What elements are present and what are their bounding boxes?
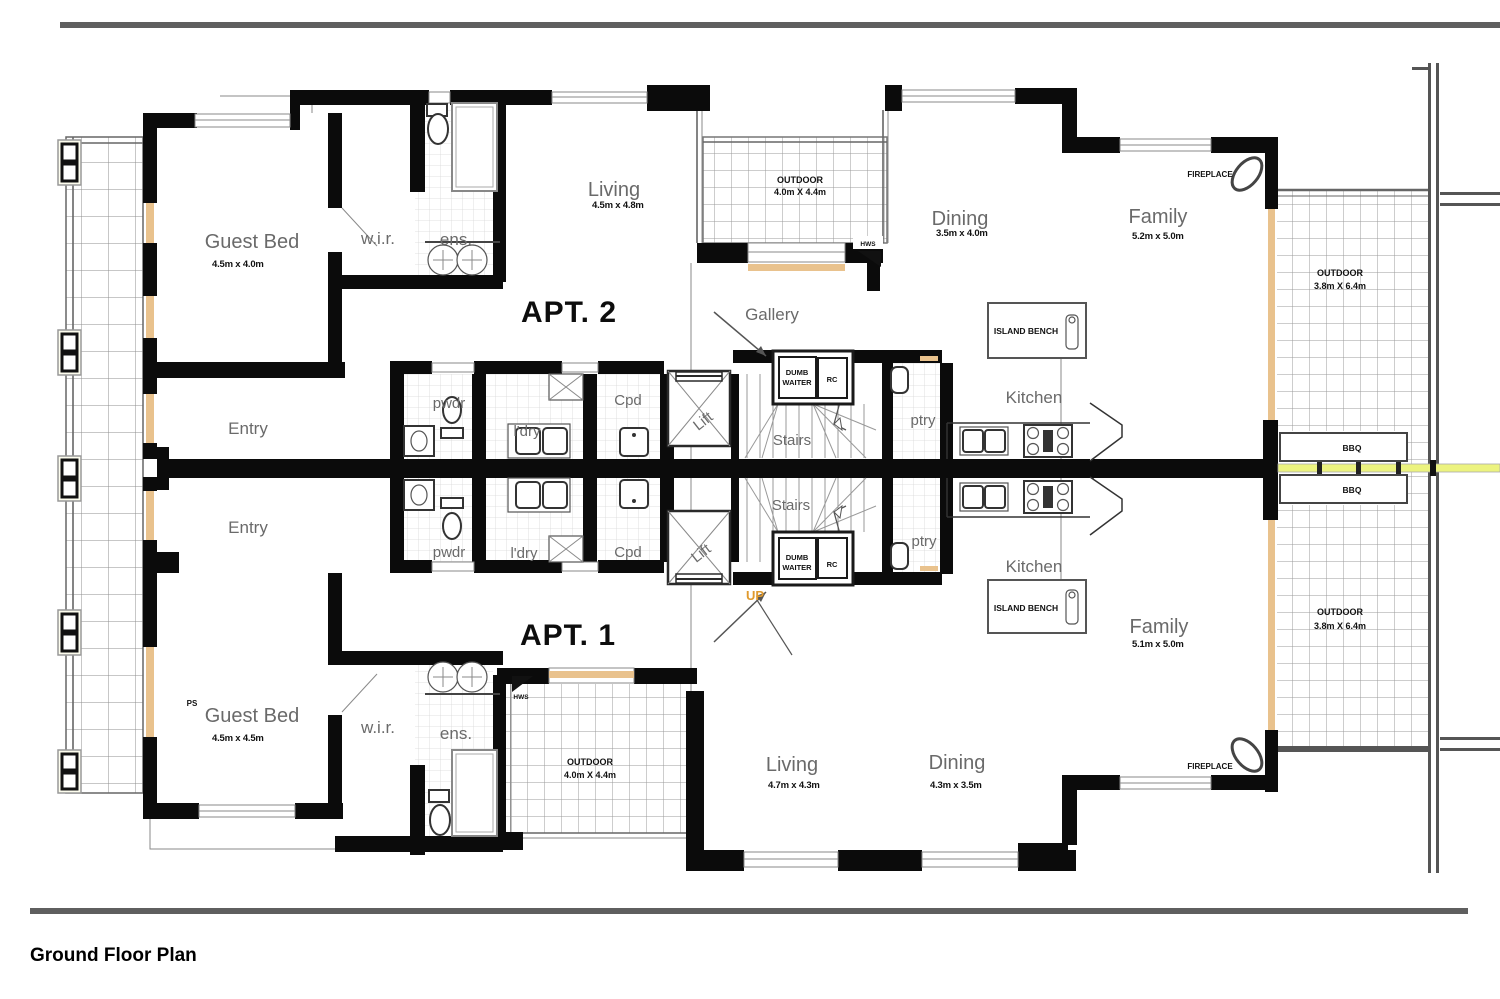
bbq-area (1278, 433, 1500, 503)
apt1-island-bench-label: ISLAND BENCH (994, 603, 1058, 613)
window (922, 852, 1018, 867)
toilet-icon (429, 790, 450, 835)
apt2-kitchen-label: Kitchen (1006, 388, 1063, 407)
shower-icon (452, 750, 497, 836)
floor-plan-canvas: Guest Bed 4.5m x 4.0m w.i.r. ens. Living… (0, 0, 1500, 999)
toilet-icon (427, 104, 448, 144)
apt1-dumb-waiter-l2: WAITER (782, 563, 812, 572)
apt2-wir-label: w.i.r. (360, 229, 395, 248)
window (429, 92, 450, 103)
sliding-door-top-outdoor (748, 243, 845, 271)
apt1-guest-bed-label: Guest Bed (205, 705, 300, 727)
apt2-family-dims: 5.2m x 5.0m (1132, 231, 1184, 242)
apt2-fireplace-label: FIREPLACE (1187, 170, 1233, 179)
apt2-living-dims: 4.5m x 4.8m (592, 200, 644, 211)
window (744, 852, 838, 867)
apt1-ldry-label: l'dry (510, 545, 538, 562)
apt2-entry-label: Entry (228, 419, 268, 438)
apt2-ldry-label: l'dry (513, 423, 541, 440)
window (195, 114, 290, 127)
window (562, 363, 598, 372)
window (562, 562, 598, 571)
kitchen-sink-icon (960, 427, 1008, 455)
outdoor-grid-top-right (1277, 190, 1428, 431)
shower-icon (452, 103, 497, 191)
window (902, 90, 1015, 102)
apt1-ps-label: PS (187, 699, 198, 708)
apt2-hws-label: HWS (860, 241, 876, 248)
bbq-label-top: BBQ (1343, 443, 1362, 453)
apt2-stairs-label: Stairs (773, 432, 811, 449)
floor-plan-drawing: Guest Bed 4.5m x 4.0m w.i.r. ens. Living… (0, 0, 1500, 999)
rangehood-icon (1090, 403, 1122, 461)
apt2-outdoor-side-label: OUTDOOR (1317, 268, 1363, 278)
apt2-dining-label: Dining (932, 208, 989, 230)
apt1-living-dims: 4.7m x 4.3m (768, 780, 820, 791)
apt1-dumb-waiter-l1: DUMB (786, 553, 809, 562)
apt1-guest-bed-dims: 4.5m x 4.5m (212, 733, 264, 744)
lift-top (668, 371, 730, 446)
tap-icon (1066, 315, 1078, 349)
window (432, 562, 474, 571)
apt2-cpd-label: Cpd (614, 392, 642, 409)
vanity-icon (404, 480, 434, 510)
apt2-ptry-label: ptry (910, 412, 936, 429)
apt1-pwdr-label: pwdr (433, 544, 466, 561)
apt1-hws-label: HWS (513, 694, 529, 701)
window (1120, 777, 1211, 789)
apt2-living-label: Living (588, 179, 640, 201)
apt1-stairs-label: Stairs (772, 497, 810, 514)
apt2-dining-dims: 3.5m x 4.0m (936, 228, 988, 239)
plan-title: Ground Floor Plan (30, 945, 197, 967)
rangehood-icon (1090, 477, 1122, 535)
deck-post (58, 750, 81, 793)
window (432, 363, 474, 372)
apt2-outdoor-side-dims: 3.8m X 6.4m (1314, 281, 1366, 291)
deck-post (58, 456, 81, 501)
sliding-door-bottom-outdoor (549, 668, 634, 683)
apt1-ptry-label: ptry (911, 533, 937, 550)
apt2-ens-label: ens. (440, 230, 472, 249)
apt2-island-bench-label: ISLAND BENCH (994, 326, 1058, 336)
apt1-entry-label: Entry (228, 518, 268, 537)
apt1-cpd-label: Cpd (614, 544, 642, 561)
kitchen-top (947, 403, 1122, 461)
window (1120, 139, 1211, 151)
linen-cupboard-icon (549, 374, 583, 400)
apt2-guest-bed-dims: 4.5m x 4.0m (212, 259, 264, 270)
apt1-outdoor-label: OUTDOOR (567, 757, 613, 767)
vanity-icon (404, 426, 434, 456)
apt2-name: APT. 2 (521, 296, 617, 329)
kitchen-sink-icon (960, 483, 1008, 511)
apt1-outdoor-dims: 4.0m X 4.4m (564, 770, 616, 780)
apt1-ens-label: ens. (440, 724, 472, 743)
apt2-family-label: Family (1129, 206, 1188, 228)
apt2-guest-bed-label: Guest Bed (205, 231, 300, 253)
tap-icon (1066, 590, 1078, 624)
window (552, 92, 647, 103)
deck-post (58, 140, 81, 185)
apt2-pwdr-label: pwdr (433, 395, 466, 412)
deck-post (58, 610, 81, 655)
apt1-living-label: Living (766, 754, 818, 776)
kitchen-bottom (947, 477, 1122, 535)
window (199, 805, 295, 817)
apt1-family-dims: 5.1m x 5.0m (1132, 639, 1184, 650)
apt1-dining-dims: 4.3m x 3.5m (930, 780, 982, 791)
apt1-name: APT. 1 (520, 619, 616, 652)
apt2-gallery-label: Gallery (745, 305, 799, 324)
apt1-outdoor-side-dims: 3.8m X 6.4m (1314, 621, 1366, 631)
apt2-outdoor-label: OUTDOOR (777, 175, 823, 185)
deck-post (58, 330, 81, 375)
apt1-kitchen-label: Kitchen (1006, 557, 1063, 576)
bbq-label-bottom: BBQ (1343, 485, 1362, 495)
apt1-outdoor-side-label: OUTDOOR (1317, 607, 1363, 617)
linen-cupboard-icon (549, 536, 583, 562)
apt1-rc-label: RC (827, 560, 838, 569)
apt1-dining-label: Dining (929, 752, 986, 774)
apt1-up-label: UP (746, 588, 764, 603)
cooktop-icon (1024, 481, 1072, 513)
apt2-rc-label: RC (827, 375, 838, 384)
cooktop-icon (1024, 425, 1072, 457)
apt2-dumb-waiter-l1: DUMB (786, 368, 809, 377)
apt1-wir-label: w.i.r. (360, 718, 395, 737)
apt2-dumb-waiter-l2: WAITER (782, 378, 812, 387)
toilet-icon (441, 498, 463, 539)
apt1-fireplace-label: FIREPLACE (1187, 762, 1233, 771)
apt1-family-label: Family (1130, 616, 1189, 638)
apt2-outdoor-dims: 4.0m X 4.4m (774, 187, 826, 197)
